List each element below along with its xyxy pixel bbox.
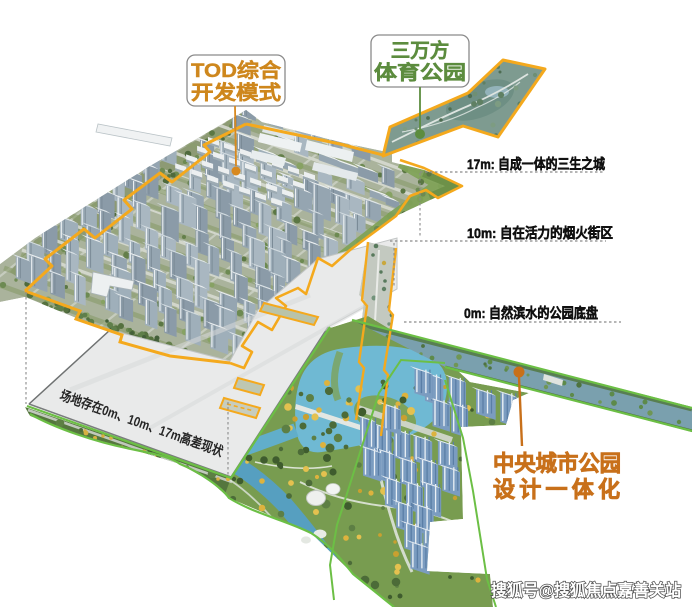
svg-text:中央城市公园: 中央城市公园 — [493, 451, 621, 476]
svg-text:10m: 自在活力的烟火街区: 10m: 自在活力的烟火街区 — [467, 225, 613, 241]
svg-text:设计一体化: 设计一体化 — [493, 477, 620, 502]
svg-text:开发模式: 开发模式 — [191, 81, 282, 104]
svg-text:体育公园: 体育公园 — [374, 61, 466, 84]
svg-text:三万方: 三万方 — [391, 39, 450, 62]
svg-text:17m: 自成一体的三生之城: 17m: 自成一体的三生之城 — [467, 156, 605, 172]
svg-text:TOD综合: TOD综合 — [191, 59, 282, 82]
svg-text:搜狐号@搜狐焦点嘉善关站: 搜狐号@搜狐焦点嘉善关站 — [491, 580, 681, 600]
svg-text:0m: 自然滨水的公园底盘: 0m: 自然滨水的公园底盘 — [464, 305, 598, 321]
